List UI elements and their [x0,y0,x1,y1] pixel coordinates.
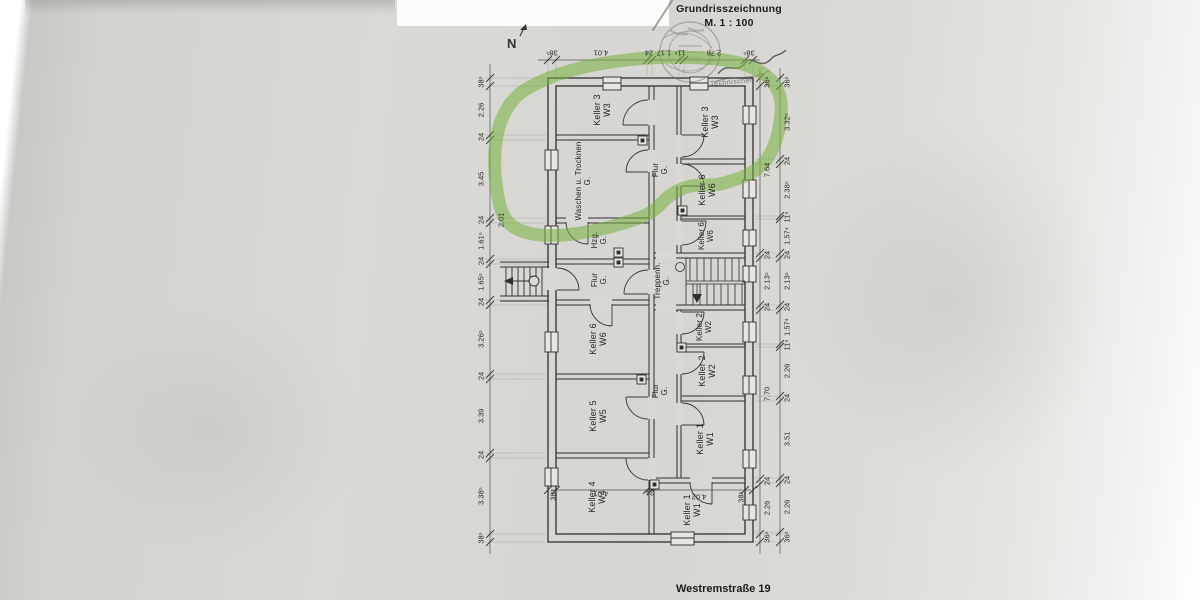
dim-label: 1.17 [657,49,672,58]
dim-label: 38⁵ [737,491,746,502]
wall-openings [546,100,712,485]
room-label-keller6-left: Keller 6W6 [588,323,608,354]
dim-label: 24 [477,133,486,141]
dim-label: 3.39 [477,409,486,424]
dim-label-inner: 2.01 [497,213,506,228]
dim-label: 38⁵ [743,49,754,58]
dim-label: 38⁵ [549,489,558,500]
highlight-marker [495,57,782,235]
room-unit: W3 [602,94,612,125]
room-name: Keller 6 [697,174,707,205]
dim-label: 2.13⁵ [783,272,792,290]
dim-label: 11⁵ [783,340,792,351]
dim-label: 24 [646,489,654,498]
room-name: Keller 1 [695,423,705,454]
dim-label: 3.32⁵ [783,113,792,131]
dim-label: 1.61⁵ [477,232,486,250]
dim-label: 38⁵ [546,49,557,58]
dim-label: 24 [783,476,792,484]
room-name: Keller 3 [592,94,602,125]
staircase-exterior [500,262,549,301]
dim-label: 2.76 [707,49,722,58]
room-unit: G. [584,142,593,221]
dim-label: 24 [477,216,486,224]
dim-label: 2.13⁵ [763,272,772,290]
dim-label: 24 [477,451,486,459]
room-label-keller2-lower: Keller 2W2 [697,355,717,386]
room-name: Keller 2 [697,355,707,386]
dim-label: 4.02 [692,493,707,502]
dim-label: 24 [645,49,653,58]
dim-label: 2.38⁵ [783,181,792,199]
dim-label: 38⁵ [477,532,486,543]
dim-label: 24 [783,303,792,311]
dim-label: 2.26 [783,500,792,515]
dim-label: 36⁵ [763,76,772,87]
dim-label: 36⁵ [763,531,772,542]
dim-label: 24 [477,372,486,380]
dim-label: 4.01 [594,490,609,499]
room-label-flur-left: FlurG. [591,273,609,287]
staircase-interior [676,258,746,305]
room-unit: W1 [705,423,715,454]
room-unit: G. [661,163,670,177]
room-label-keller2-upper: Keller 2W2 [696,313,714,341]
dim-label: 24 [783,394,792,402]
dim-label: 24 [477,298,486,306]
dim-label: 7.64 [763,163,772,178]
dim-label: 1.57⁴ [783,318,792,336]
room-unit: G. [661,384,670,398]
room-label-keller1-upper: Keller 1W1 [695,423,715,454]
room-label-treppenhaus: Treppenh.G. [654,262,672,299]
dim-label: 2.26 [783,364,792,379]
room-label-hzg: Hzg.G. [591,232,609,249]
room-unit: W6 [707,222,716,250]
dim-label: 24 [763,303,772,311]
room-name: Keller 6 [588,323,598,354]
room-name: Keller 5 [588,400,598,431]
dim-label: 4.01 [594,49,609,58]
room-label-flur-top: FlurG. [652,163,670,177]
room-unit: G. [600,273,609,287]
dim-label: 3.38⁵ [477,487,486,505]
dim-label: 11⁵ [783,212,792,223]
room-unit: W3 [710,106,720,137]
dim-label: 24 [477,257,486,265]
north-arrow-icon [520,24,527,36]
dim-label: 1.57⁴ [783,227,792,245]
room-label-keller5: Keller 5W5 [588,400,608,431]
room-unit: G. [600,232,609,249]
room-label-keller6-right-lower: Keller 6W6 [698,222,716,250]
room-unit: W6 [598,323,608,354]
room-unit: W6 [707,174,717,205]
room-unit: W5 [598,400,608,431]
room-label-keller6-right-upper: Keller 6W6 [697,174,717,205]
dim-label: 1.65⁵ [477,273,486,291]
room-name: Keller 3 [700,106,710,137]
dim-label: 2.26 [477,103,486,118]
room-unit: W2 [705,313,714,341]
dimension-extension-lines [485,55,786,542]
dim-label: 24 [783,251,792,259]
dim-label: 24 [763,477,772,485]
dim-label: 24 [763,251,772,259]
room-label-keller3-right: Keller 3W3 [700,106,720,137]
room-label-keller3-left: Keller 3W3 [592,94,612,125]
dim-label: 3.26⁵ [477,330,486,348]
dim-label: 36⁵ [783,531,792,542]
room-name: Keller 1 [682,494,692,525]
dim-label: 3.45 [477,172,486,187]
room-label-flur-main: FlurG. [652,384,670,398]
dim-label: 7.70 [763,387,772,402]
dim-label: 3.51 [783,432,792,447]
dimension-chain-lines [490,60,780,554]
dim-label: 24 [783,157,792,165]
dim-label: 2.26 [763,501,772,516]
room-unit: G. [663,262,672,299]
room-unit: W2 [707,355,717,386]
dim-label: 36⁵ [783,76,792,87]
dim-label: 38⁵ [477,76,486,87]
dim-label: 11⁵ [675,49,686,58]
room-label-waschen-trocknen: Waschen u. TrocknenG. [575,142,593,221]
